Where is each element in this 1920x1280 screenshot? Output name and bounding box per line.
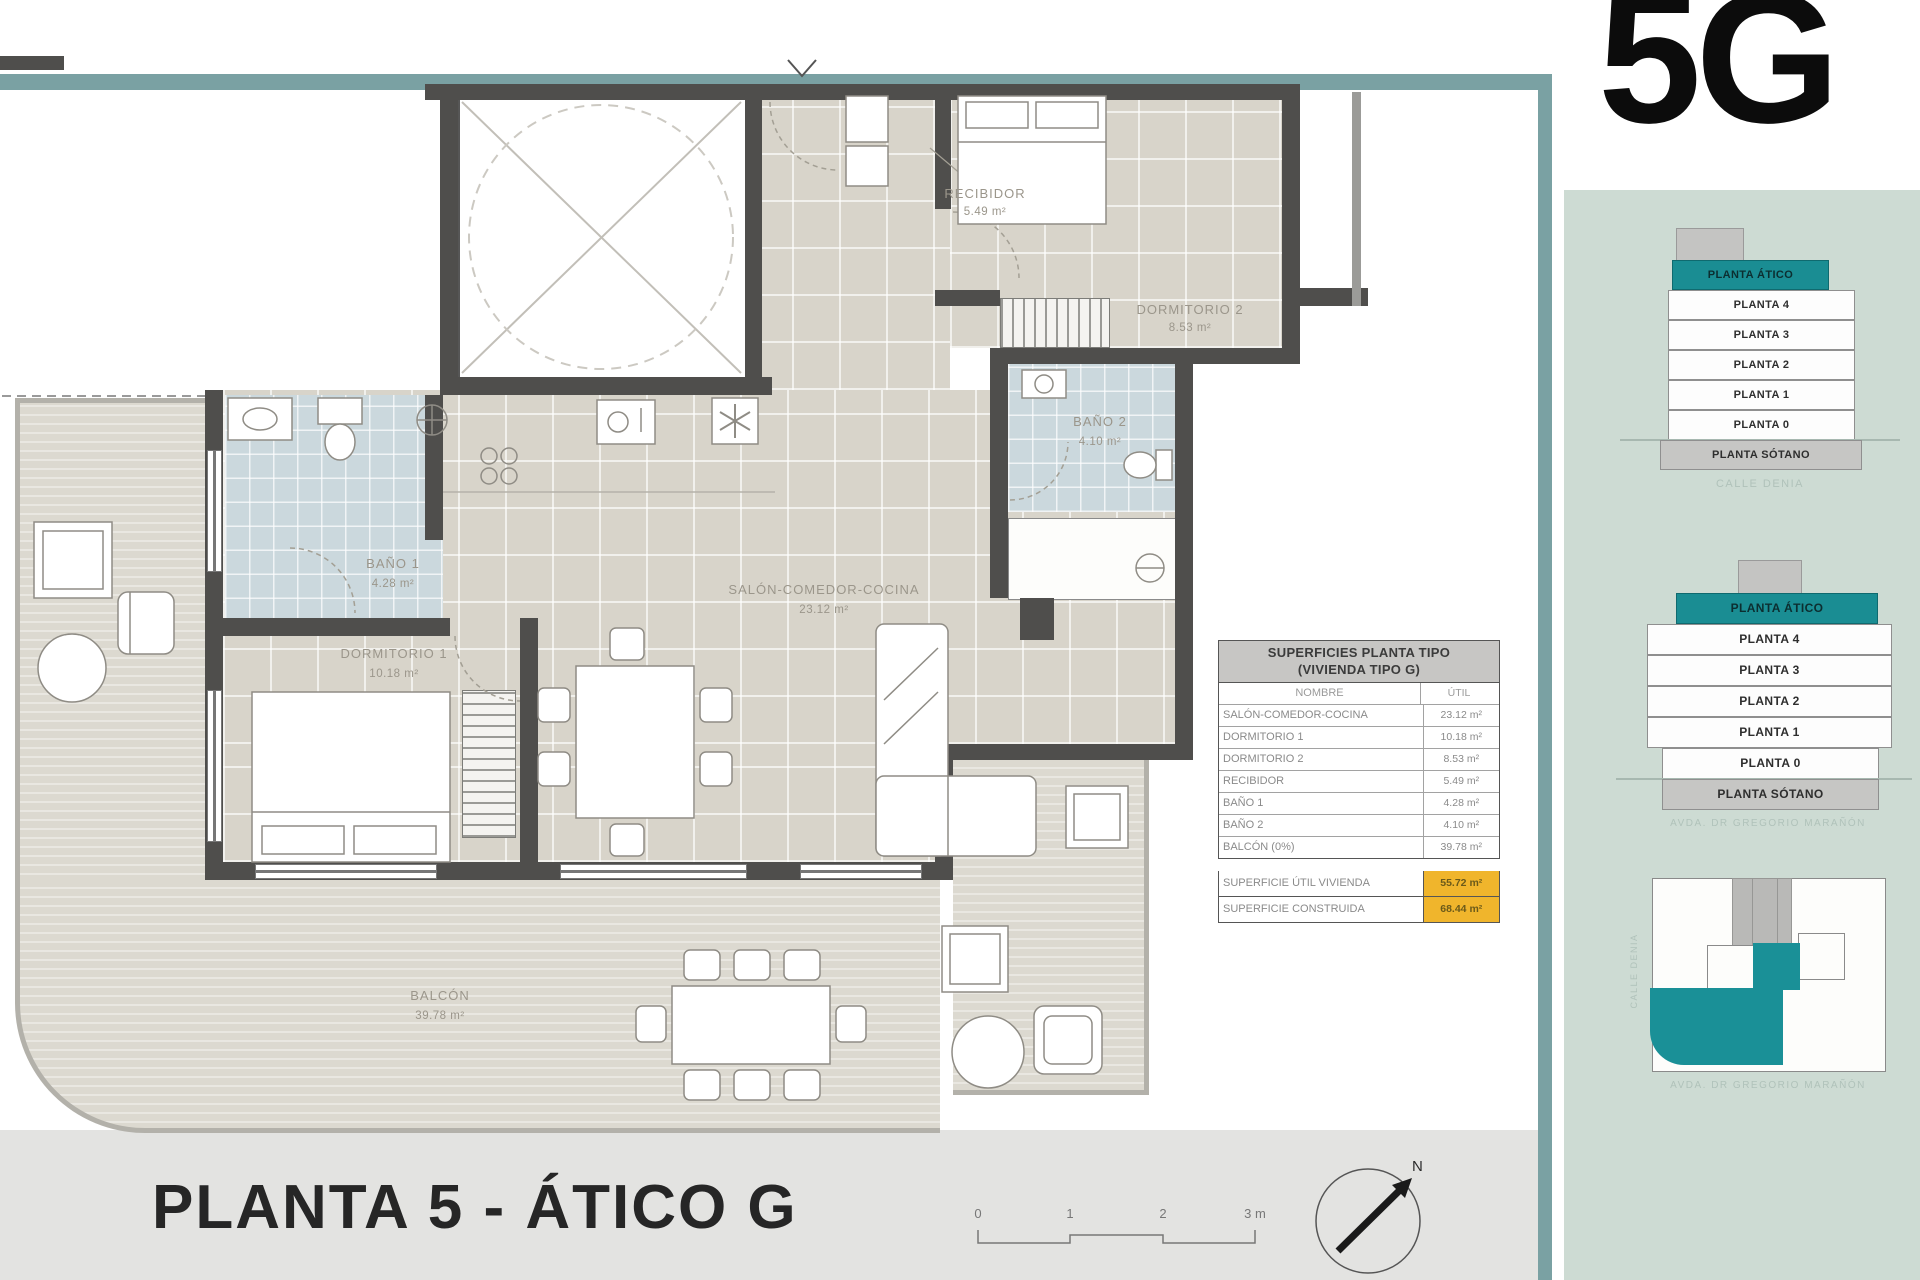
room-label-bano2: BAÑO 2: [1073, 414, 1127, 429]
site-unit-highlight-lower: [1650, 988, 1783, 1065]
wall-stub-topleft: [0, 56, 64, 70]
teal-side-strip: [1538, 74, 1552, 1280]
stack-level: PLANTA 2: [1668, 350, 1855, 380]
room-area-bano2: 4.10 m²: [1079, 436, 1122, 448]
wall-bano2-top: [990, 348, 1300, 364]
site-unit-outline-1: [1707, 945, 1755, 993]
stack-level: PLANTA 3: [1668, 320, 1855, 350]
stack-level-atico: PLANTA ÁTICO: [1676, 593, 1878, 624]
scale-label-3: 3 m: [1244, 1206, 1266, 1221]
areas-table-body: NOMBREÚTIL SALÓN-COMEDOR-COCINA23.12 m² …: [1218, 683, 1500, 859]
site-street-bottom: AVDA. DR GREGORIO MARAÑÓN: [1670, 1080, 1866, 1091]
stack-level: PLANTA 1: [1668, 380, 1855, 410]
stack-chimney: [1676, 228, 1744, 262]
scale-label-0: 0: [974, 1206, 981, 1221]
laundry-room-floor: [1008, 518, 1177, 600]
wall-core-left: [440, 84, 458, 395]
wall-core-bottom: [440, 377, 772, 395]
areas-table-title: SUPERFICIES PLANTA TIPO (VIVIENDA TIPO G…: [1218, 640, 1500, 683]
room-label-balcon: BALCÓN: [410, 988, 469, 1003]
wall-right-outer-mid: [1175, 348, 1193, 760]
stack-level: PLANTA 2: [1647, 686, 1892, 717]
stack-level: PLANTA 0: [1662, 748, 1879, 779]
wall-pillar: [1020, 598, 1054, 640]
table-total-construida: SUPERFICIE CONSTRUIDA68.44 m²: [1218, 897, 1500, 923]
wall-bano1-right: [425, 395, 443, 540]
room-label-salon: SALÓN-COMEDOR-COCINA: [728, 582, 919, 597]
window-salon-2: [800, 864, 922, 879]
window-bano1: [207, 450, 222, 572]
site-unit-outline-2: [1798, 933, 1845, 980]
stack-level: PLANTA 4: [1647, 624, 1892, 655]
wall-top: [425, 84, 1300, 100]
scale-label-2: 2: [1159, 1206, 1166, 1221]
table-total-util: SUPERFICIE ÚTIL VIVIENDA55.72 m²: [1218, 871, 1500, 897]
stack-level: PLANTA 1: [1647, 717, 1892, 748]
balcony-deck-left: [15, 398, 228, 880]
areas-table: SUPERFICIES PLANTA TIPO (VIVIENDA TIPO G…: [1218, 640, 1500, 923]
site-street-left: CALLE DENIA: [1629, 933, 1639, 1008]
site-unit-highlight-upper: [1753, 943, 1800, 990]
scale-label-1: 1: [1066, 1206, 1073, 1221]
table-row: BALCÓN (0%)39.78 m²: [1219, 836, 1499, 858]
wall-right-outer-top: [1282, 84, 1300, 364]
salon-floor-lower: [223, 744, 935, 862]
wall-core-right: [745, 84, 762, 377]
page-title: PLANTA 5 - ÁTICO G: [152, 1172, 798, 1243]
table-header-row: NOMBREÚTIL: [1219, 683, 1499, 704]
stack-level-sotano: PLANTA SÓTANO: [1662, 779, 1879, 810]
table-row: SALÓN-COMEDOR-COCINA23.12 m²: [1219, 704, 1499, 726]
street-caption: AVDA. DR GREGORIO MARAÑÓN: [1670, 818, 1866, 829]
stack-level: PLANTA 3: [1647, 655, 1892, 686]
room-area-dormitorio1: 10.18 m²: [369, 668, 418, 680]
room-area-bano1: 4.28 m²: [372, 578, 415, 590]
dormitorio2-closet: [1000, 298, 1110, 348]
room-area-balcon: 39.78 m²: [415, 1010, 464, 1022]
wall-bano1-dorm1: [205, 618, 450, 636]
stack-level-sotano: PLANTA SÓTANO: [1660, 440, 1862, 470]
window-dorm1-side: [207, 690, 222, 842]
room-label-dormitorio1: DORMITORIO 1: [340, 646, 447, 661]
stack-level: PLANTA 0: [1668, 410, 1855, 440]
room-label-dormitorio2: DORMITORIO 2: [1136, 302, 1243, 317]
room-area-recibidor: 5.49 m²: [964, 206, 1007, 218]
wall-salon-bottom-right: [935, 744, 1193, 760]
table-row: BAÑO 24.10 m²: [1219, 814, 1499, 836]
room-label-bano1: BAÑO 1: [366, 556, 420, 571]
room-area-dormitorio2: 8.53 m²: [1169, 322, 1212, 334]
balcony-deck-right: [953, 760, 1149, 1095]
balcony-deck-bottom: [15, 880, 940, 1133]
table-row: DORMITORIO 28.53 m²: [1219, 748, 1499, 770]
wall-bano2-left: [990, 348, 1008, 598]
table-row: DORMITORIO 110.18 m²: [1219, 726, 1499, 748]
room-area-salon: 23.12 m²: [799, 604, 848, 616]
dormitorio1-wardrobe: [462, 690, 516, 838]
window-dorm1: [255, 864, 437, 879]
north-label: N: [1412, 1158, 1423, 1175]
room-label-recibidor: RECIBIDOR: [944, 186, 1025, 201]
street-caption: CALLE DENIA: [1716, 478, 1804, 490]
window-salon: [560, 864, 747, 879]
wall-recibidor-corner: [935, 290, 1000, 306]
wall-salon-right-lower: [935, 744, 953, 880]
recibidor-floor: [745, 90, 950, 390]
stack-chimney: [1738, 560, 1802, 595]
stair-core: [458, 98, 749, 381]
unit-code: 5G: [1598, 0, 1834, 152]
wall-neighbor-thin: [1352, 92, 1361, 306]
wall-dorm1-salon: [520, 618, 538, 862]
stack-level: PLANTA 4: [1668, 290, 1855, 320]
stack-level-atico: PLANTA ÁTICO: [1672, 260, 1829, 290]
balcony-parapet-top: [15, 398, 207, 403]
table-row: RECIBIDOR5.49 m²: [1219, 770, 1499, 792]
table-row: BAÑO 14.28 m²: [1219, 792, 1499, 814]
